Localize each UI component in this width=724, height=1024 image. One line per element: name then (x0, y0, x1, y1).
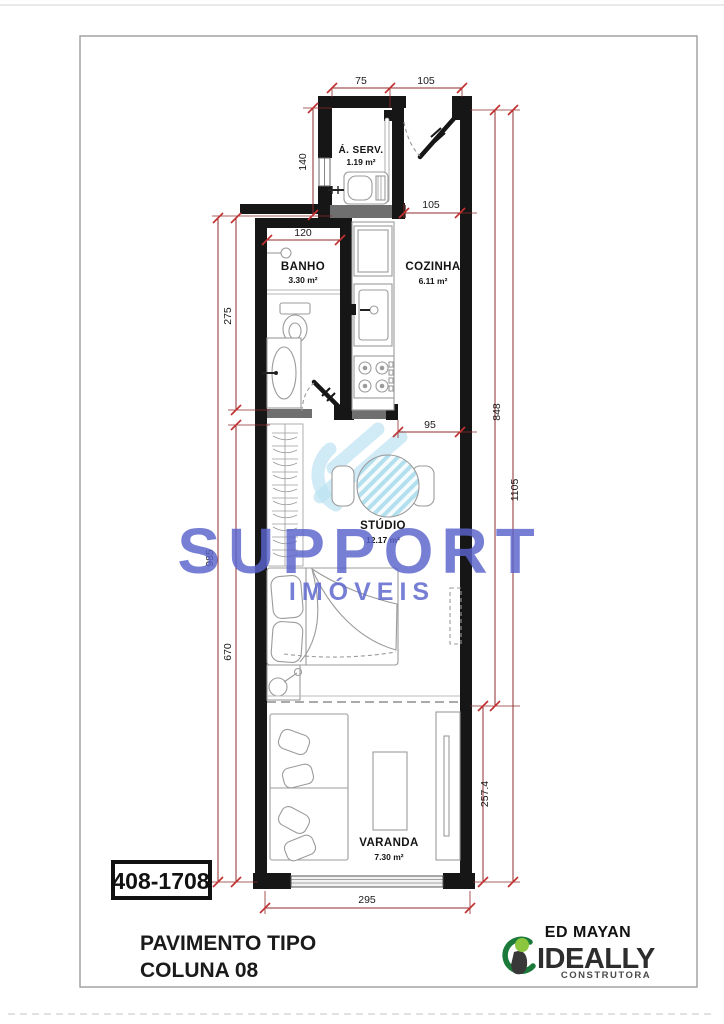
dim-bottom-width: 295 (358, 894, 376, 906)
dim-studio-height: 670 (222, 643, 234, 661)
dim-banho-width: 120 (294, 227, 312, 239)
cozinha-fixtures (351, 222, 394, 410)
aserv-washer (328, 172, 388, 204)
ideally-logo: IDEALLY CONSTRUTORA (505, 938, 655, 981)
room-varanda-area: 7.30 m² (374, 852, 403, 862)
building-name: ED MAYAN (545, 924, 631, 941)
ideally-person-icon (505, 938, 533, 974)
watermark-support: SUPPORT (177, 515, 542, 587)
dim-aserv-height: 140 (297, 153, 309, 171)
studio-wall-unit (450, 588, 461, 644)
dim-varanda-height: 257.4 (479, 781, 491, 807)
plan-title-line2: COLUNA 08 (140, 959, 259, 982)
room-banho-name: BANHO (281, 261, 325, 273)
unit-number: 408-1708 (112, 868, 209, 894)
dim-corridor: 105 (422, 199, 440, 211)
dim-banho-height: 275 (222, 307, 234, 325)
room-varanda-name: VARANDA (359, 837, 418, 849)
dim-top-left: 75 (355, 75, 367, 87)
studio-nightstand-lamp (267, 665, 302, 700)
dim-top-right: 105 (417, 75, 435, 87)
room-aserv-name: Á. SERV. (339, 143, 384, 156)
room-banho-area: 3.30 m² (288, 275, 317, 285)
banho-door (302, 382, 344, 412)
entry-door (404, 114, 458, 157)
floorplan-sheet: Á. SERV. 1.19 m² BANHO 3.30 m² COZINHA 6… (0, 0, 724, 1024)
dim-right-upper: 848 (491, 403, 503, 421)
watermark-imoveis: IMÓVEIS (289, 576, 435, 606)
room-cozinha-area: 6.11 m² (419, 276, 448, 286)
brand-subtitle: CONSTRUTORA (561, 970, 651, 981)
dim-studio-opening: 95 (424, 419, 436, 431)
room-cozinha-name: COZINHA (405, 261, 460, 273)
room-aserv-area: 1.19 m² (346, 157, 375, 167)
plan-title-line1: PAVIMENTO TIPO (140, 932, 316, 955)
dim-right-total: 1105 (509, 479, 521, 502)
